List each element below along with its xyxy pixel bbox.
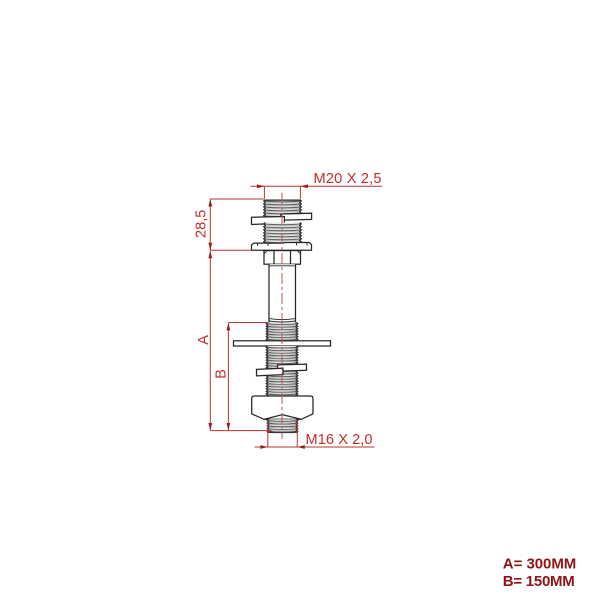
svg-text:28,5: 28,5	[194, 210, 210, 238]
svg-text:B: B	[214, 369, 230, 379]
svg-text:A: A	[196, 335, 212, 345]
svg-text:M20 X 2,5: M20 X 2,5	[314, 171, 382, 187]
svg-text:A= 300MM: A= 300MM	[503, 555, 577, 572]
svg-text:M16 X 2,0: M16 X 2,0	[306, 432, 373, 448]
svg-text:B= 150MM: B= 150MM	[503, 573, 575, 590]
